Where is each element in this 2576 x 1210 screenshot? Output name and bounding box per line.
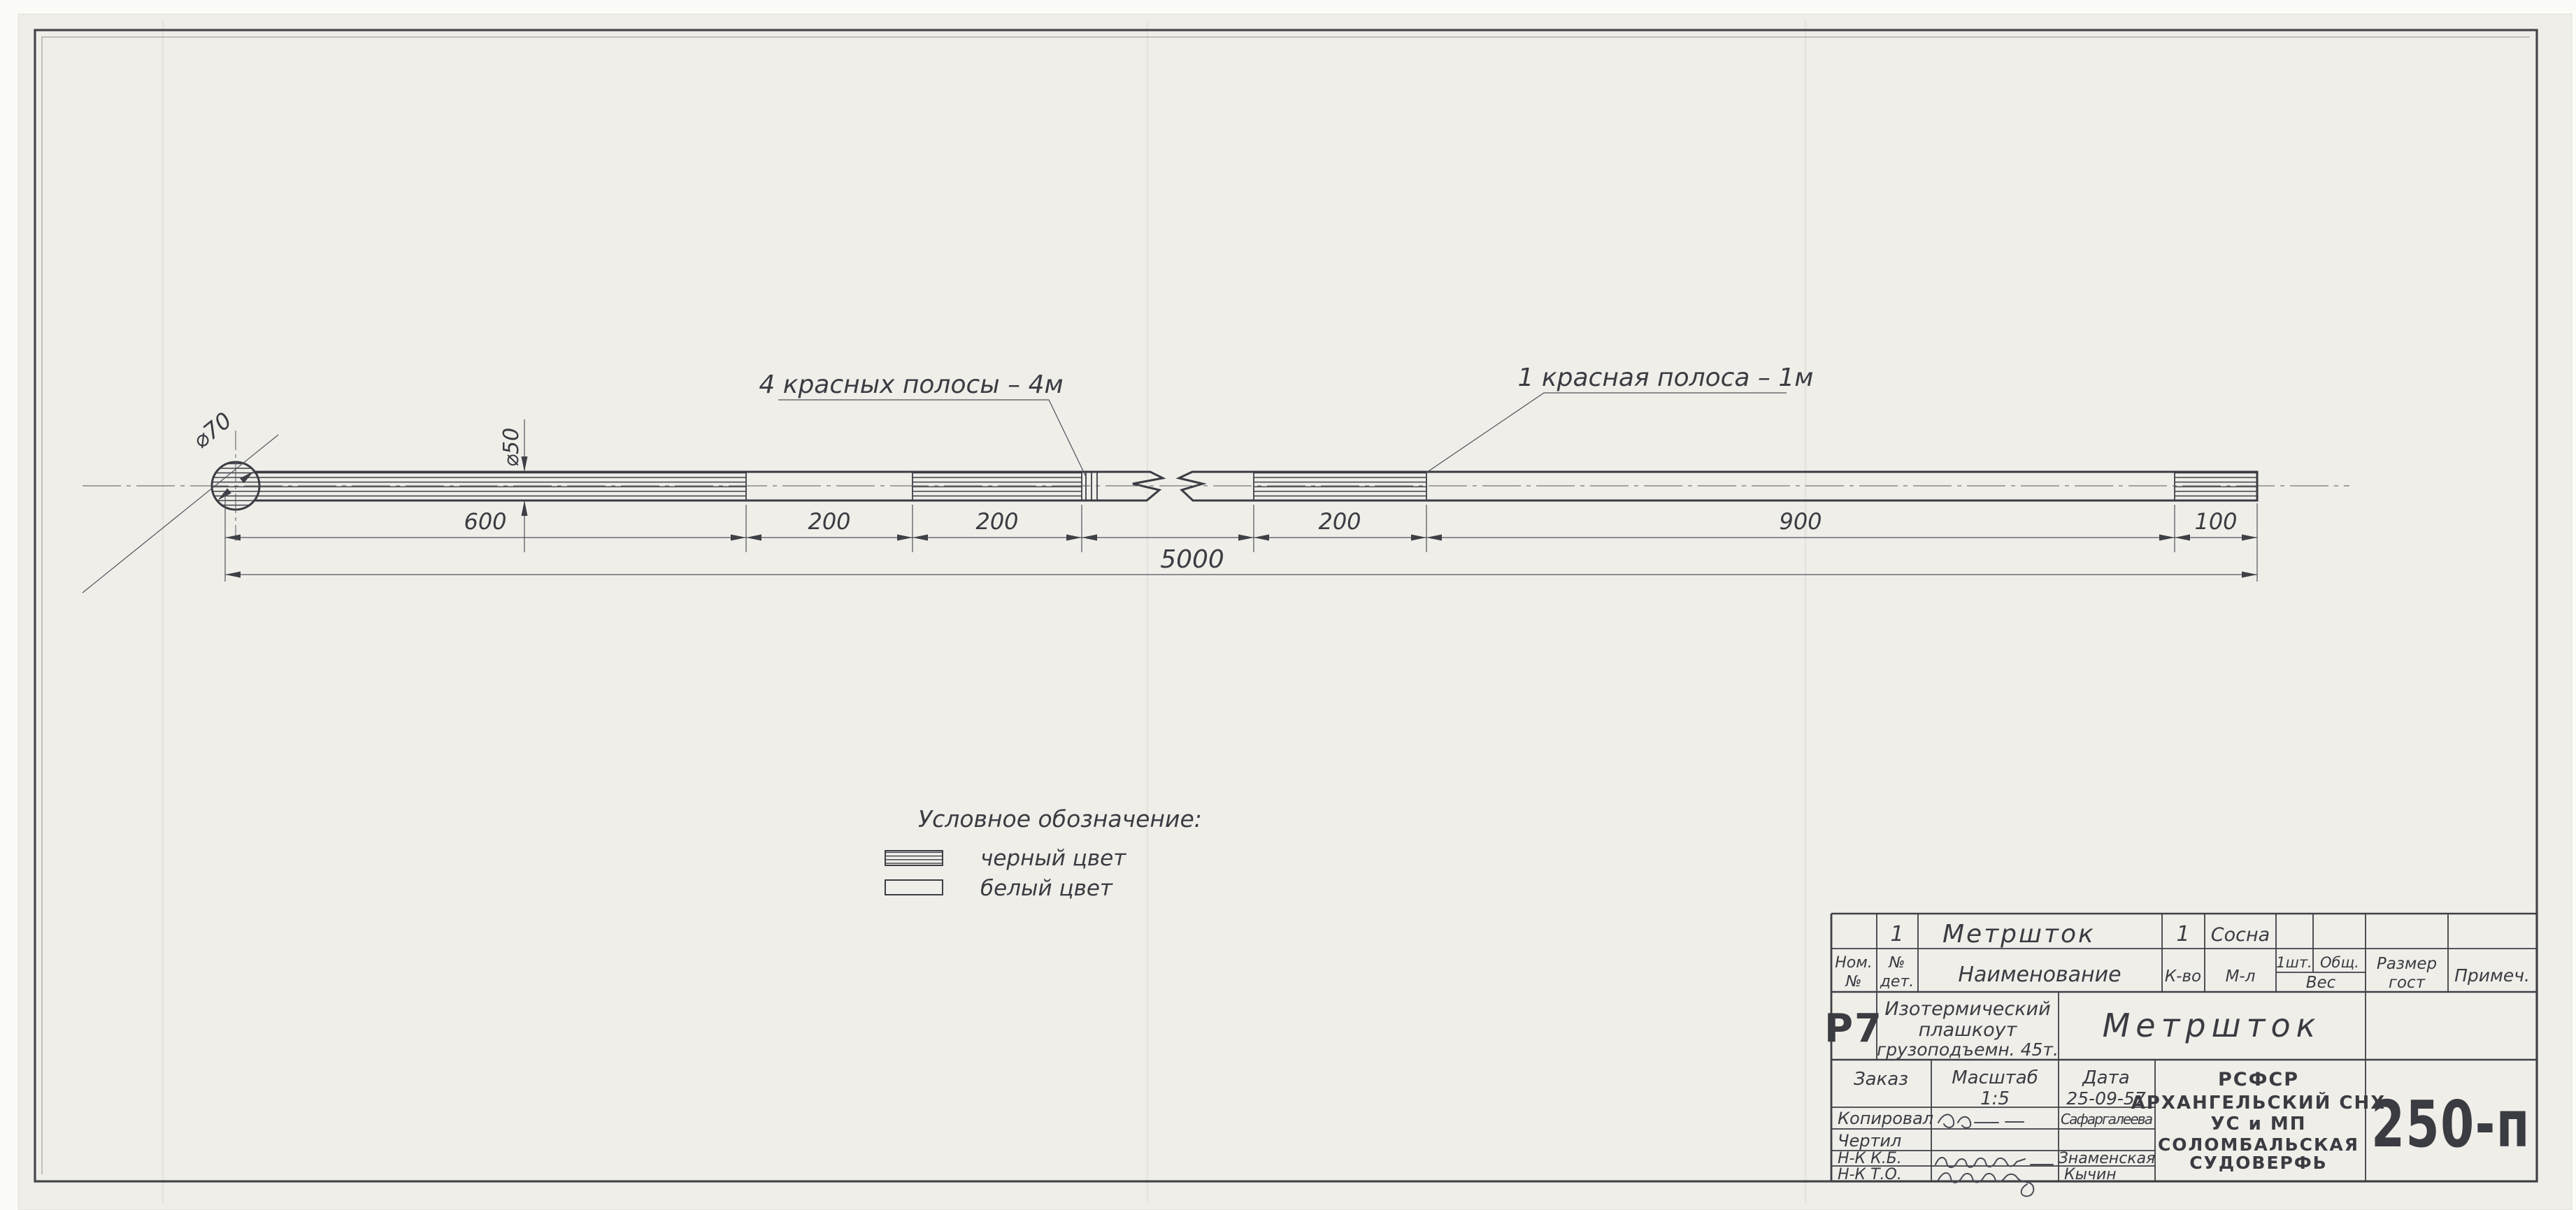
- hdr-det-2: дет.: [1880, 973, 1915, 991]
- project-object-line1: Изотермический: [1884, 998, 2050, 1020]
- role-copier: Копировал: [1838, 1109, 1933, 1128]
- hdr-pos-2: №: [1845, 973, 1862, 991]
- hdr-material: М-л: [2226, 967, 2256, 986]
- dia-50-label: ⌀50: [499, 428, 524, 467]
- dim-600: 600: [464, 508, 506, 535]
- name-to: Кычин: [2064, 1166, 2117, 1183]
- hdr-pos-1: Ном.: [1835, 954, 1873, 972]
- project-object-line3: грузоподъемн. 45т.: [1877, 1039, 2059, 1060]
- name-kb: Знаменская: [2059, 1150, 2156, 1167]
- hdr-total: Общ.: [2320, 954, 2359, 971]
- dim-5000: 5000: [1160, 545, 1224, 574]
- hdr-weight: Вес: [2306, 974, 2336, 992]
- org-line-5: СУДОВЕРФЬ: [2189, 1153, 2327, 1173]
- role-draftsman: Чертил: [1838, 1131, 1901, 1151]
- meta-date-label: Дата: [2082, 1067, 2129, 1088]
- hdr-qty: К-во: [2165, 967, 2201, 986]
- role-kb: Н-К К.Б.: [1838, 1150, 1902, 1167]
- item-name: Метршток: [1942, 920, 2096, 949]
- document-number: 250-п: [2371, 1087, 2531, 1162]
- project-object-line2: плашкоут: [1919, 1019, 2018, 1041]
- org-line-1: РСФСР: [2218, 1069, 2299, 1090]
- item-qty: 1: [2176, 922, 2189, 946]
- blueprint-sheet: ⌀70 ⌀50: [0, 0, 2576, 1210]
- legend-title: Условное обозначение:: [918, 805, 1202, 833]
- legend-swatch-black: [885, 851, 943, 865]
- dim-200-c: 200: [1318, 508, 1361, 535]
- role-to: Н-К Т.О.: [1838, 1166, 1902, 1183]
- hdr-det-1: №: [1889, 954, 1905, 972]
- hdr-size-1: Размер: [2377, 955, 2437, 973]
- dim-200-b: 200: [975, 508, 1018, 535]
- hdr-per-item: 1шт.: [2276, 954, 2312, 971]
- hdr-name: Наименование: [1958, 963, 2121, 987]
- item-material: Сосна: [2211, 924, 2270, 946]
- meta-scale-value: 1:5: [1980, 1088, 2010, 1109]
- org-line-2: АРХАНГЕЛЬСКИЙ СНХ: [2131, 1091, 2387, 1114]
- org-line-4: СОЛОМБАЛЬСКАЯ: [2158, 1135, 2359, 1155]
- org-line-3: УС и МП: [2210, 1114, 2306, 1135]
- project-code: Р7: [1824, 1006, 1883, 1051]
- hdr-size-2: гост: [2389, 974, 2426, 992]
- project-part-name: Метршток: [2103, 1007, 2321, 1044]
- dim-200-a: 200: [808, 508, 850, 535]
- meta-scale-label: Масштаб: [1952, 1067, 2038, 1088]
- item-det-no: 1: [1890, 922, 1903, 946]
- dim-900: 900: [1779, 508, 1822, 535]
- legend-label-white: белый цвет: [980, 876, 1113, 901]
- legend-label-black: черный цвет: [980, 846, 1126, 871]
- hdr-note: Примеч.: [2454, 965, 2530, 986]
- annotation-left-text: 4 красных полосы – 4м: [759, 370, 1063, 399]
- meta-order-label: Заказ: [1854, 1069, 1908, 1090]
- dim-100: 100: [2194, 508, 2237, 535]
- drawing-canvas: ⌀70 ⌀50: [0, 0, 2576, 1210]
- annotation-right-text: 1 красная полоса – 1м: [1518, 363, 1814, 392]
